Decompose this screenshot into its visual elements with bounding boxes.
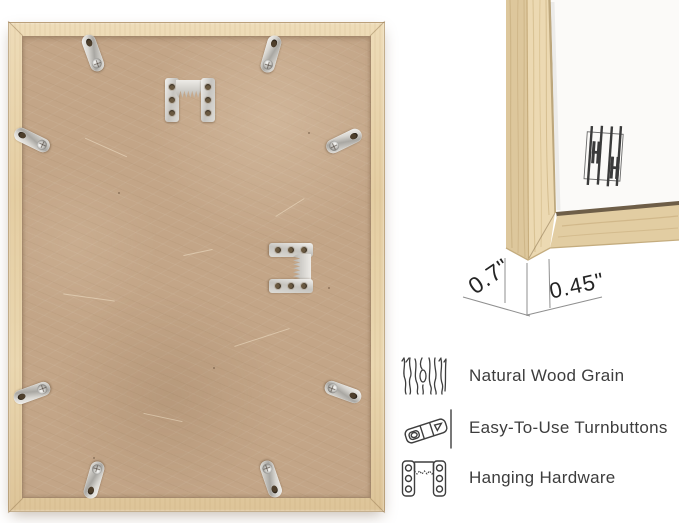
hanger-hole <box>300 282 308 290</box>
backing-speck <box>213 367 215 369</box>
backing-scratch <box>183 249 213 256</box>
hanger-hole <box>168 109 176 117</box>
hanger-hole <box>168 96 176 104</box>
hanging-hardware-icon <box>401 458 447 498</box>
hanger-hole <box>274 246 282 254</box>
frame-mat-area <box>551 0 679 212</box>
hanger-hole <box>274 282 282 290</box>
feature-label: Hanging Hardware <box>469 468 616 488</box>
backing-scratch <box>234 328 289 347</box>
hanger-hole <box>300 246 308 254</box>
hanger-hole <box>204 109 212 117</box>
hanger-hole <box>168 83 176 91</box>
turnbutton-icon <box>401 404 455 452</box>
feature-row-hanging-hardware: Hanging Hardware <box>401 457 616 499</box>
wood-grain-icon <box>401 357 447 395</box>
frame-side-face <box>506 0 528 260</box>
feature-row-turnbuttons: Easy-To-Use Turnbuttons <box>401 404 668 452</box>
frame-back-view <box>8 22 385 512</box>
backing-scratch <box>143 413 182 422</box>
hanger-plate <box>269 279 313 293</box>
backing-speck <box>118 192 120 194</box>
hanger-sawtooth-bridge <box>293 254 311 282</box>
sawtooth-hanger <box>269 243 313 293</box>
backing-speck <box>308 132 310 134</box>
hanger-hole <box>287 282 295 290</box>
backing-scratch <box>275 198 304 217</box>
product-image: 0.7" 0.45" Natural Wood Grain <box>0 0 679 523</box>
hanger-hole <box>204 83 212 91</box>
feature-label: Easy-To-Use Turnbuttons <box>469 418 668 438</box>
backing-speck <box>328 287 330 289</box>
sawtooth-hanger <box>165 78 215 122</box>
hanger-plate <box>201 78 215 122</box>
feature-label: Natural Wood Grain <box>469 366 624 386</box>
hanger-hole <box>287 246 295 254</box>
hanger-hole <box>204 96 212 104</box>
hanger-sawtooth-bridge <box>176 80 204 98</box>
feature-row-wood-grain: Natural Wood Grain <box>401 356 624 396</box>
backing-scratch <box>85 138 127 158</box>
backing-scratch <box>63 293 115 301</box>
